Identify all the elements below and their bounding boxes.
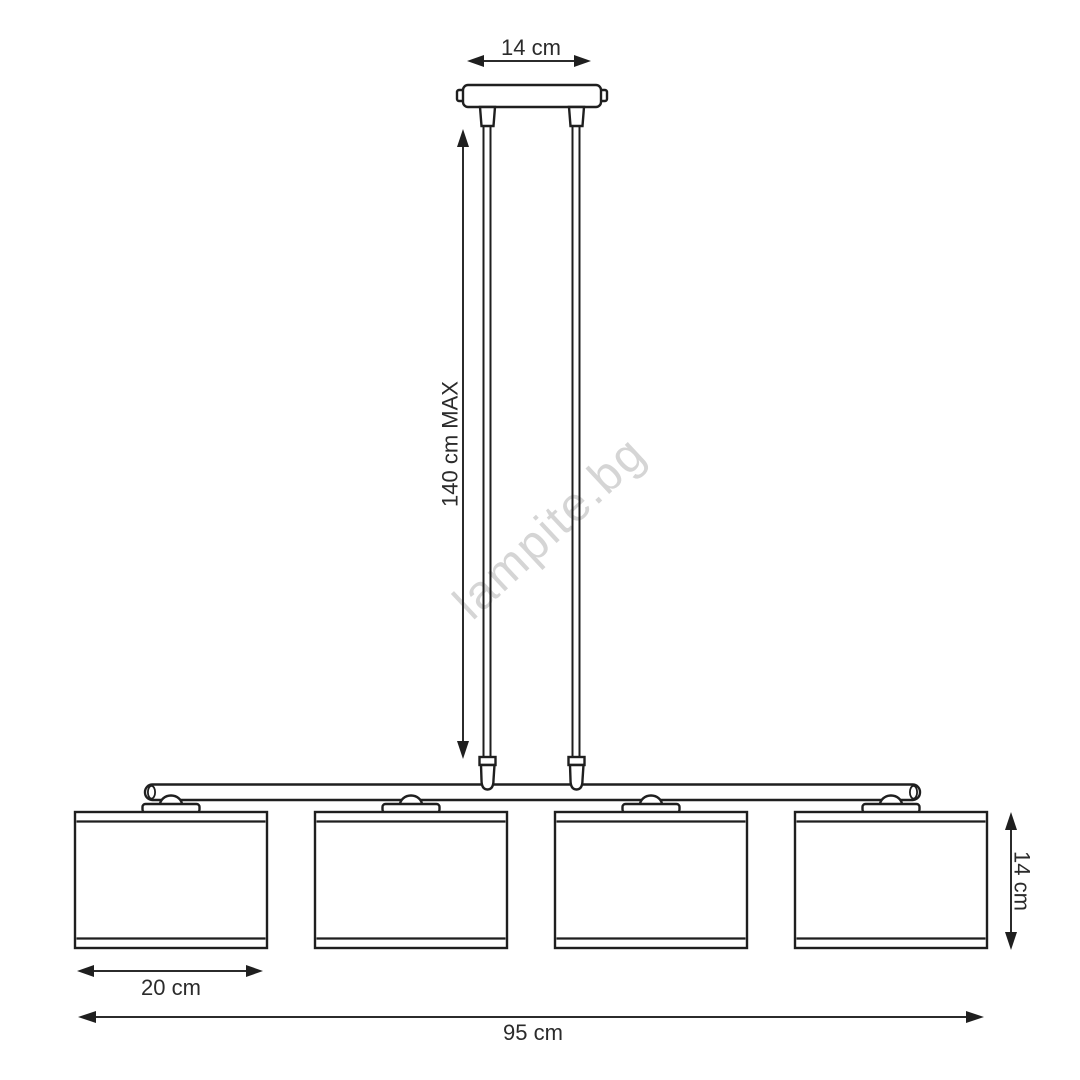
- lamp-shade-3: [555, 812, 747, 948]
- arrowhead-right-icon: [246, 965, 263, 977]
- dim-canopy-width-label: 14 cm: [501, 35, 561, 60]
- arrowhead-up-icon: [1005, 812, 1017, 830]
- shade-body-4: [795, 812, 987, 948]
- dim-shade-width: 20 cm: [77, 965, 263, 1000]
- suspension-cord-right: [569, 107, 585, 790]
- pendant-light-diagram: 14 cm 140 cm MAX: [0, 0, 1080, 1080]
- lamp-shade-4: [795, 812, 987, 948]
- shade-body-1: [75, 812, 267, 948]
- arrowhead-left-icon: [77, 965, 94, 977]
- dim-total-width-label: 95 cm: [503, 1020, 563, 1045]
- cord-grip-bottom-left: [481, 765, 495, 790]
- dim-total-width: 95 cm: [78, 1011, 984, 1045]
- dim-canopy-width: 14 cm: [467, 35, 591, 67]
- cord-grip-top-right: [569, 107, 584, 126]
- arrowhead-left-icon: [467, 55, 484, 67]
- arrowhead-down-icon: [457, 741, 469, 759]
- dim-shade-width-label: 20 cm: [141, 975, 201, 1000]
- arrowhead-right-icon: [966, 1011, 984, 1023]
- arrowhead-down-icon: [1005, 932, 1017, 950]
- fixture-bar: [145, 785, 920, 801]
- lamp-shade-1: [75, 812, 267, 948]
- dim-shade-height: 14 cm: [1005, 812, 1035, 950]
- cord-grip-bottom-right: [570, 765, 584, 790]
- arrowhead-up-icon: [457, 129, 469, 147]
- ceiling-canopy: [457, 85, 607, 107]
- dim-shade-height-label: 14 cm: [1010, 851, 1035, 911]
- dim-suspension-height: 140 cm MAX: [438, 129, 470, 759]
- shade-body-3: [555, 812, 747, 948]
- dimension-drawing-page: lampite.bg 14 cm 140 cm MAX: [0, 0, 1080, 1080]
- bar-body: [145, 785, 920, 801]
- cord-grip-top-left: [480, 107, 495, 126]
- suspension-cord-left: [480, 107, 496, 790]
- arrowhead-left-icon: [78, 1011, 96, 1023]
- dim-suspension-label: 140 cm MAX: [438, 381, 463, 507]
- lamp-shade-2: [315, 812, 507, 948]
- shade-body-2: [315, 812, 507, 948]
- canopy-body: [463, 85, 601, 107]
- arrowhead-right-icon: [574, 55, 591, 67]
